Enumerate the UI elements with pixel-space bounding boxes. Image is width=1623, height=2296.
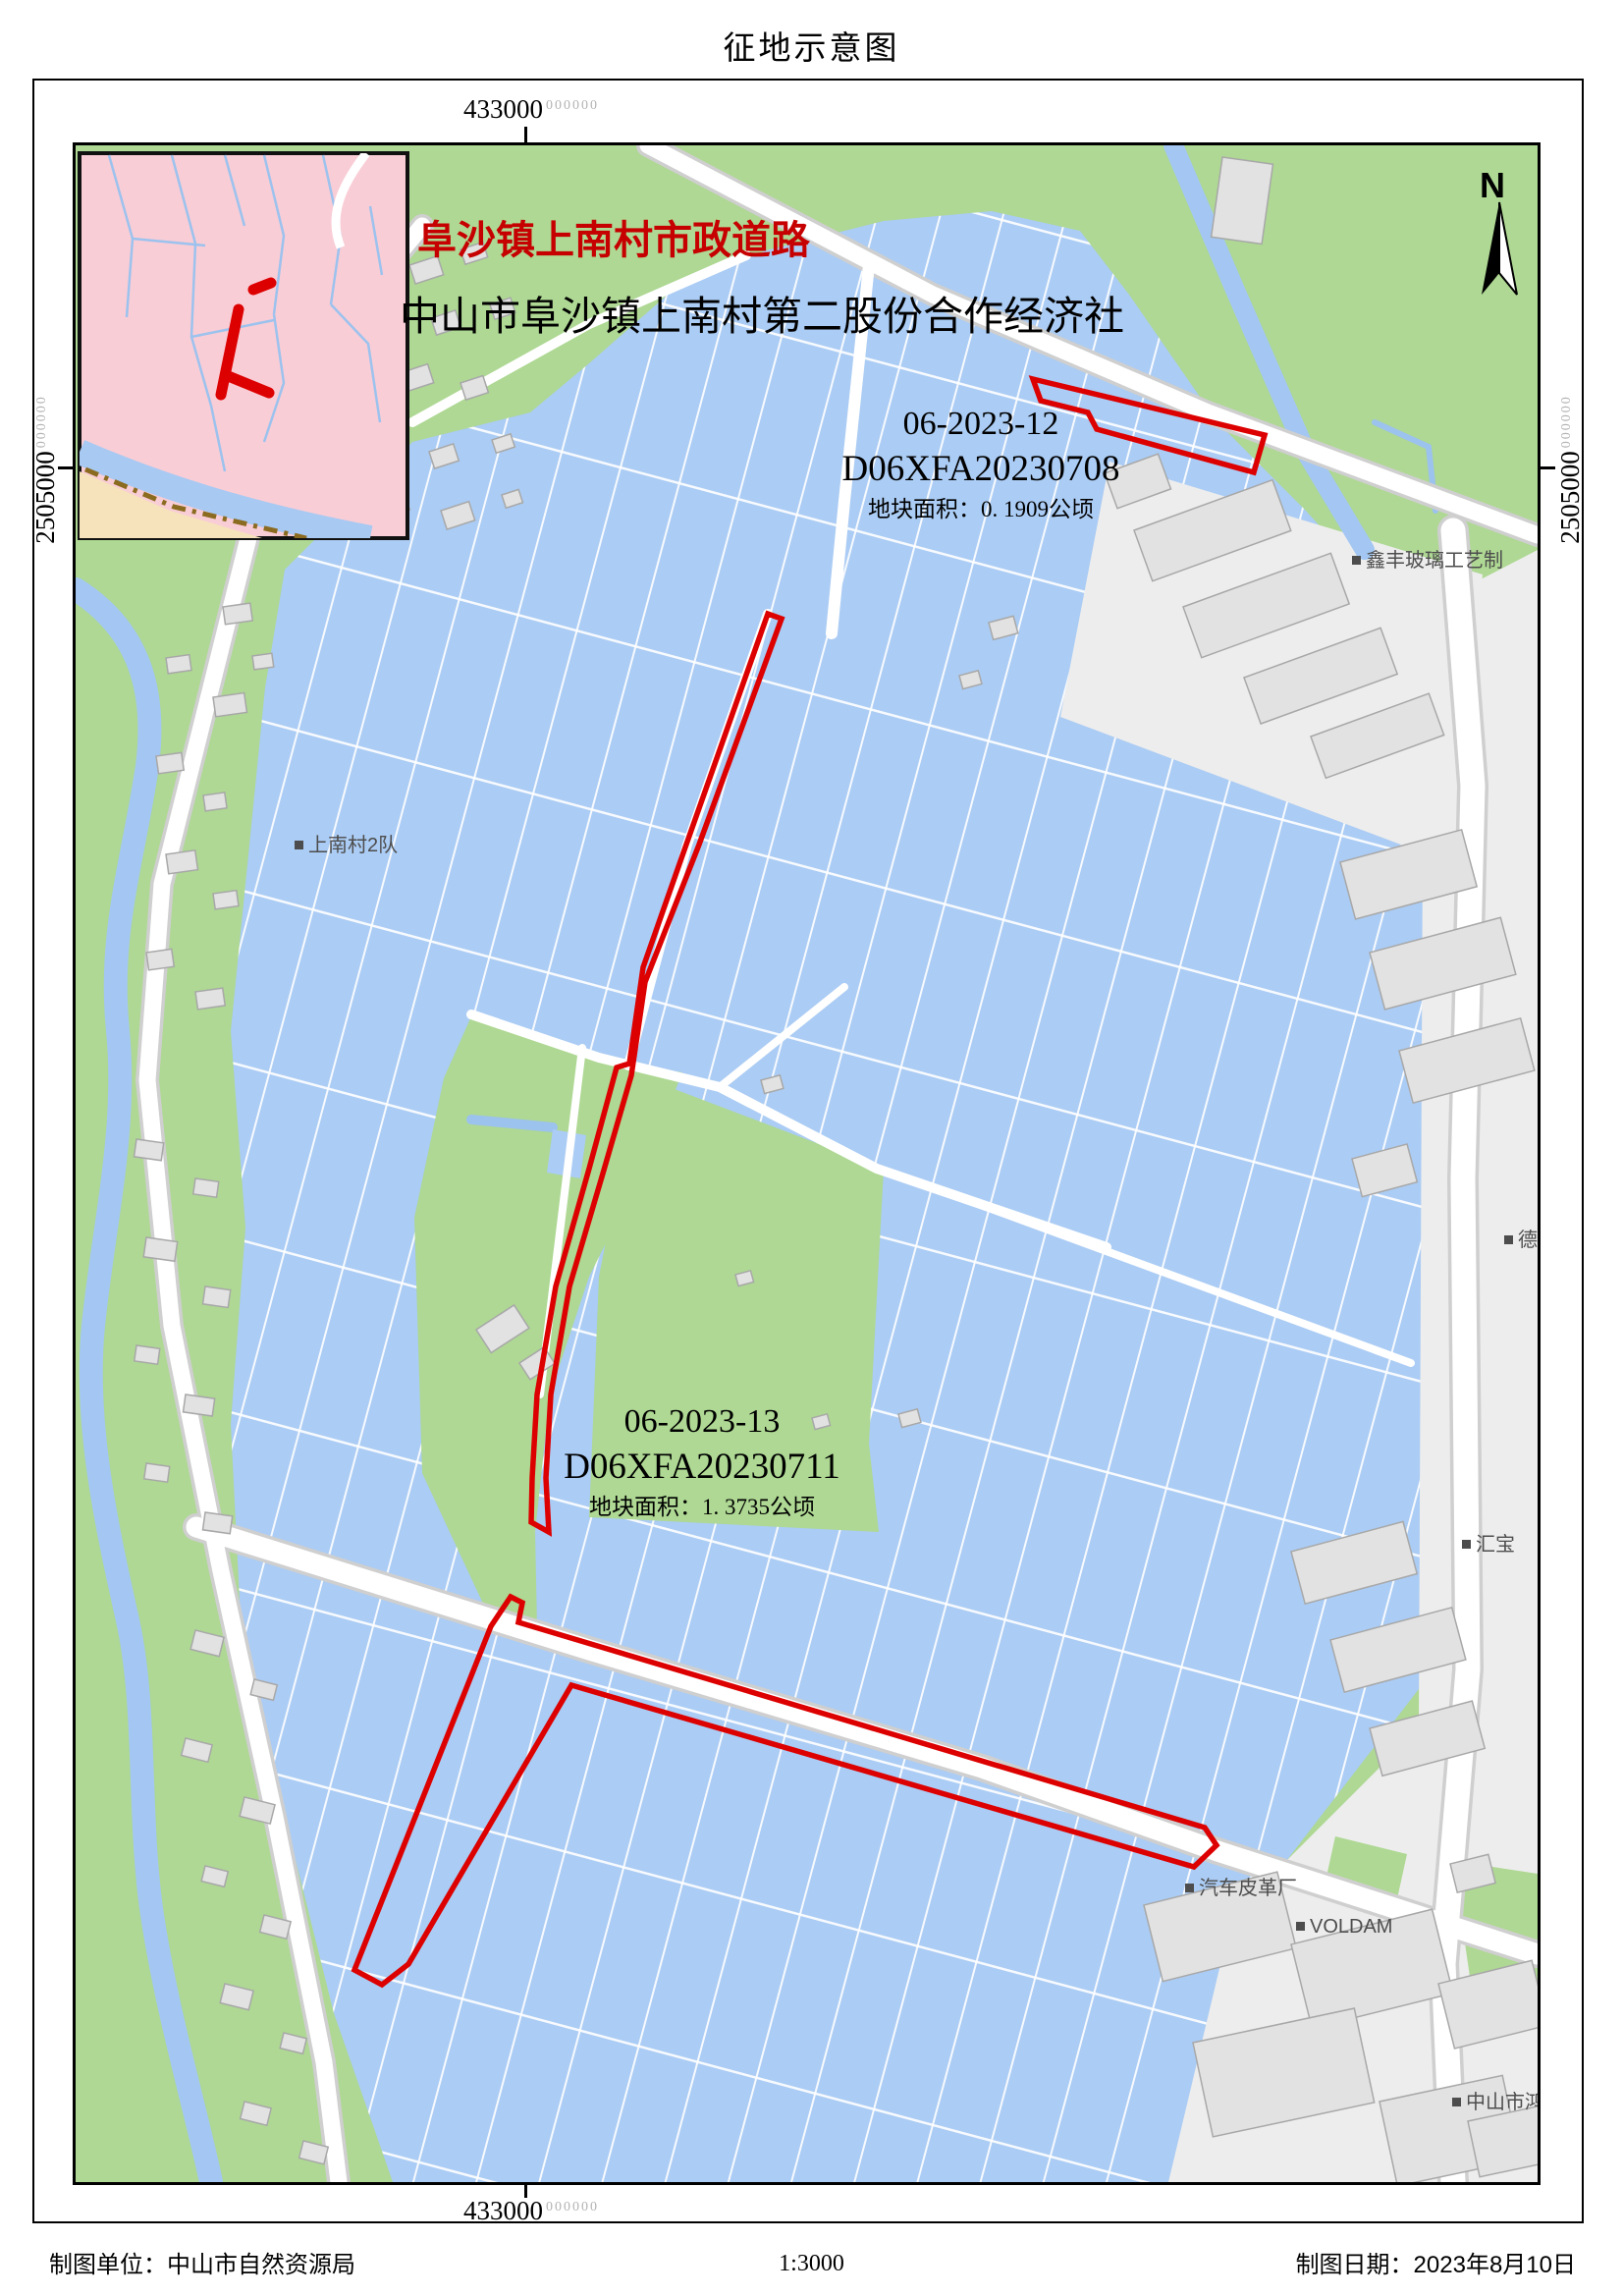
coordinate-top: 433000000000 <box>463 94 599 125</box>
parcel-code: D06XFA20230708 <box>775 446 1187 493</box>
poi-text: VOLDAM <box>1310 1916 1392 1938</box>
poi-text: 德 <box>1518 1230 1538 1251</box>
location-inset <box>80 153 407 538</box>
coordinate-left-superscript: 000000 <box>34 395 49 448</box>
poi-marker <box>1296 1922 1305 1931</box>
coordinate-left: 2505000000000 <box>30 361 60 577</box>
poi-label-huibao: 汇宝 <box>1462 1528 1515 1557</box>
poi-label-leather-factory: 汽车皮革厂 <box>1185 1872 1297 1900</box>
project-name-heading: 阜沙镇上南村市政道路 <box>417 208 810 265</box>
tick-top <box>524 127 527 143</box>
coordinate-left-value: 2505000 <box>30 451 60 544</box>
poi-marker <box>1504 1235 1513 1244</box>
poi-label-shangnancun2dui: 上南村2队 <box>295 829 398 857</box>
coordinate-top-superscript: 000000 <box>546 98 599 113</box>
parcel-id: 06-2023-12 <box>775 403 1187 446</box>
poi-text: 鑫丰玻璃工艺制 <box>1366 550 1503 572</box>
owner-heading: 中山市阜沙镇上南村第二股份合作经济社 <box>400 283 1124 342</box>
coordinate-bottom: 433000000000 <box>463 2196 599 2226</box>
parcel-area: 地块面积：1. 3735公顷 <box>496 1491 908 1524</box>
poi-text: 上南村2队 <box>308 835 398 856</box>
poi-text: 汽车皮革厂 <box>1199 1878 1297 1899</box>
map-canvas: 阜沙镇上南村市政道路 中山市阜沙镇上南村第二股份合作经济社 N 06-2023-… <box>73 142 1541 2185</box>
coordinate-top-value: 433000 <box>463 94 543 124</box>
coordinate-bottom-superscript: 000000 <box>546 2200 599 2214</box>
parcel-id: 06-2023-13 <box>496 1400 908 1444</box>
parcel-area: 地块面积：0. 1909公顷 <box>775 493 1187 526</box>
coordinate-bottom-value: 433000 <box>463 2196 543 2225</box>
poi-text: 中山市鸿 <box>1466 2092 1541 2113</box>
poi-label-voldam: VOLDAM <box>1296 1916 1392 1939</box>
parcel-code: D06XFA20230711 <box>496 1444 908 1491</box>
poi-marker <box>1185 1884 1194 1892</box>
parcel-annotation-1: 06-2023-12 D06XFA20230708 地块面积：0. 1909公顷 <box>775 403 1187 526</box>
poi-marker <box>1452 2098 1461 2106</box>
north-label: N <box>1480 165 1505 206</box>
coordinate-right-value: 2505000 <box>1555 451 1585 544</box>
parcel-annotation-2: 06-2023-13 D06XFA20230711 地块面积：1. 3735公顷 <box>496 1400 908 1524</box>
poi-marker <box>295 841 303 849</box>
coordinate-right-superscript: 000000 <box>1559 395 1574 448</box>
land-acquisition-map-page: 征地示意图 433000000000 433000000000 25050000… <box>0 0 1623 2296</box>
coordinate-right: 2505000000000 <box>1555 361 1585 577</box>
poi-label-zhongshan: 中山市鸿 <box>1452 2086 1541 2114</box>
poi-text: 汇宝 <box>1476 1534 1515 1556</box>
poi-label-xinfeng-glass: 鑫丰玻璃工艺制 <box>1352 544 1503 573</box>
poi-label-de: 德 <box>1504 1224 1538 1252</box>
page-title: 征地示意图 <box>0 22 1623 69</box>
poi-marker <box>1462 1540 1471 1549</box>
footer-date: 制图日期：2023年8月10日 <box>1296 2245 1576 2279</box>
poi-marker <box>1352 556 1361 565</box>
